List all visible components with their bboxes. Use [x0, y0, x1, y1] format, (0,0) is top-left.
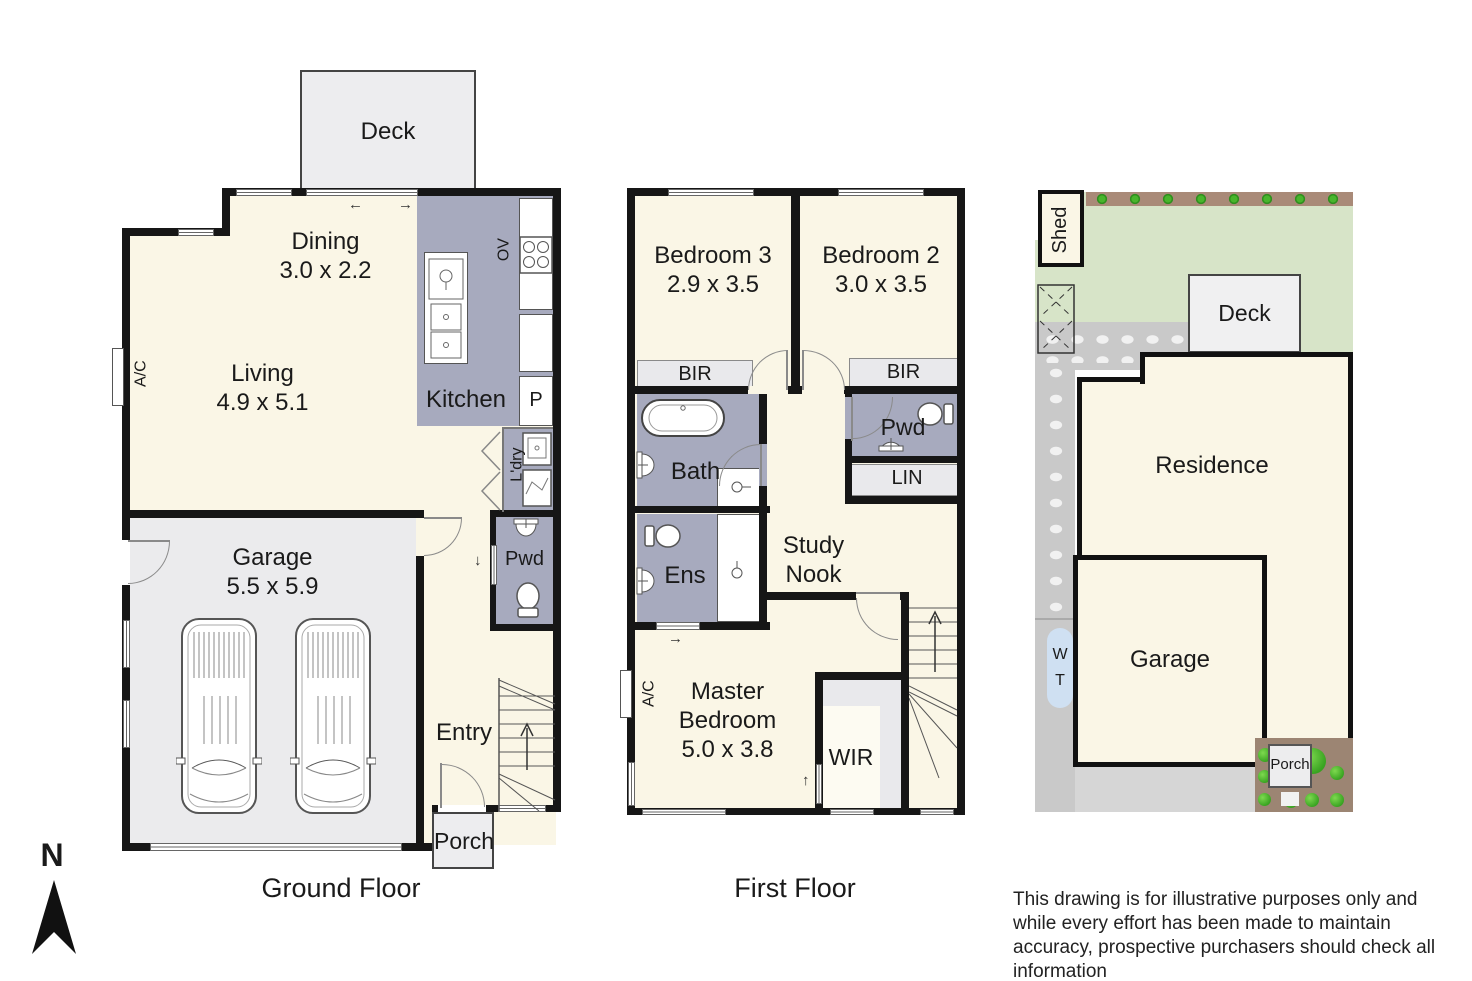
ff-bir-right-label: BIR [849, 360, 958, 384]
gf-kitchen-label: Kitchen [416, 386, 516, 415]
gf-powder-label: Pwd [496, 547, 553, 571]
ff-linen-label: LIN [862, 466, 952, 490]
clothesline-icon [1037, 284, 1075, 354]
stepping-stones-vertical [1039, 360, 1073, 618]
ff-powder-label: Pwd [858, 414, 948, 442]
site-residence-upper [1140, 352, 1353, 384]
ff-bir-left-label: BIR [637, 362, 753, 386]
floor-plan-canvas: Deck ← → [0, 0, 1472, 981]
gf-garage-label: Garage5.5 x 5.9 [190, 544, 355, 602]
gf-wall-powder-bottom [490, 624, 561, 631]
bathtub-icon [641, 399, 725, 437]
slider-arrow-right-icon: → [398, 196, 413, 213]
first-floor-title: First Floor [695, 873, 895, 904]
gf-laundry-partition [502, 428, 504, 512]
ff-window-master [642, 809, 726, 815]
gf-powder-slider-arrow-icon: ↓ [474, 552, 482, 569]
gf-deck: Deck [300, 70, 476, 192]
ff-wall-left [627, 188, 635, 815]
gf-porch: Porch [432, 812, 494, 869]
car-icon [290, 616, 376, 816]
gf-toilet-icon [514, 582, 542, 618]
gf-porch-label: Porch [434, 828, 492, 856]
pantry-label: P [519, 388, 553, 412]
ff-bedroom2-label: Bedroom 23.0 x 3.5 [808, 242, 954, 300]
gf-garage-door-panel [150, 843, 402, 851]
ff-window-bed2 [838, 189, 924, 196]
gf-window-step [178, 229, 214, 236]
driveway-divider-line [1035, 618, 1075, 620]
compass-north-label: N [30, 836, 74, 874]
gf-ac-unit [112, 348, 124, 406]
site-porch-label: Porch [1270, 756, 1310, 774]
gf-entry-label: Entry [419, 719, 509, 748]
bush-icon [1330, 793, 1344, 807]
wir-robe-right [880, 700, 903, 808]
ff-wall-bedroom-divider [791, 192, 800, 390]
gf-window-garage-1 [123, 620, 130, 668]
north-arrow-icon [22, 878, 86, 958]
site-garage-label: Garage [1090, 646, 1250, 675]
kitchen-fridge-space [519, 314, 553, 372]
ff-bedroom3-label: Bedroom 32.9 x 3.5 [640, 242, 786, 300]
ff-wall-stairs [901, 592, 909, 808]
gf-living-label: Living4.9 x 5.1 [180, 360, 345, 418]
gf-window-dining [236, 189, 292, 196]
gf-wall-garage-right [416, 510, 424, 851]
disclaimer-text: This drawing is for illustrative purpose… [1013, 888, 1460, 981]
ff-ens-slider [656, 622, 700, 630]
ff-stairs [909, 598, 959, 808]
ff-master-label: Master Bedroom5.0 x 3.8 [660, 678, 795, 764]
gf-deck-label: Deck [302, 118, 474, 147]
ground-floor-title: Ground Floor [241, 873, 441, 904]
ff-study-nook-label: Study Nook [766, 532, 861, 590]
site-deck-label: Deck [1190, 300, 1299, 328]
site-porch-step [1281, 792, 1299, 806]
site-porch: Porch [1268, 744, 1312, 788]
ff-wall-linen-bottom [845, 496, 965, 504]
site-residence-label: Residence [1122, 452, 1302, 481]
stove-icon [519, 236, 553, 274]
ff-window-bed3 [668, 189, 754, 196]
ff-window-left [628, 762, 635, 806]
shower-tap-icon [728, 560, 746, 582]
site-shed-label: Shed [1048, 200, 1072, 260]
gf-ac-label: A/C [131, 351, 150, 397]
ff-wall-bath-right-1 [759, 394, 767, 444]
wir-slider-arrow-icon: ↑ [802, 772, 810, 789]
gf-window-garage-2 [123, 700, 130, 748]
oven-label: OV [494, 230, 513, 270]
gf-laundry-bifold-door [478, 430, 502, 512]
gf-garage-hall-door-opening [416, 518, 424, 556]
gf-wall-garage-top [126, 510, 423, 518]
ff-wall-powder-bottom [845, 456, 965, 463]
site-deck: Deck [1188, 274, 1301, 353]
ff-window-stairs [920, 809, 954, 815]
ff-ens-slider-arrow-icon: → [668, 630, 683, 647]
car-icon [176, 616, 262, 816]
ff-bath-label: Bath [653, 458, 738, 487]
ff-ac-unit [620, 670, 632, 718]
bush-icon [1305, 793, 1319, 807]
ff-wall-wir-top [815, 672, 908, 680]
ens-toilet-icon [644, 522, 682, 550]
ff-window-wir [830, 809, 874, 815]
site-path-bottom [1075, 767, 1257, 812]
ff-ac-label: A/C [639, 671, 658, 717]
gf-basin-icon [512, 518, 540, 538]
water-tank-label: W T [1047, 642, 1073, 693]
ff-ens-label: Ens [645, 562, 725, 591]
site-hedge [1086, 192, 1353, 206]
slider-arrow-left-icon: ← [348, 196, 363, 213]
bush-icon [1330, 766, 1344, 780]
ff-wall-bath-ens [627, 506, 770, 513]
gf-laundry-label: L'dry [507, 440, 526, 490]
island-sink-dishwasher-icon [428, 258, 464, 360]
gf-slider-deck [306, 189, 418, 196]
ff-wir-label: WIR [821, 744, 881, 772]
gf-dining-label: Dining3.0 x 2.2 [243, 228, 408, 286]
bush-icon [1258, 793, 1271, 806]
gf-laundry-top-line [502, 427, 553, 429]
ff-master-door-leaf [856, 592, 900, 594]
ff-wall-mid [627, 386, 965, 394]
